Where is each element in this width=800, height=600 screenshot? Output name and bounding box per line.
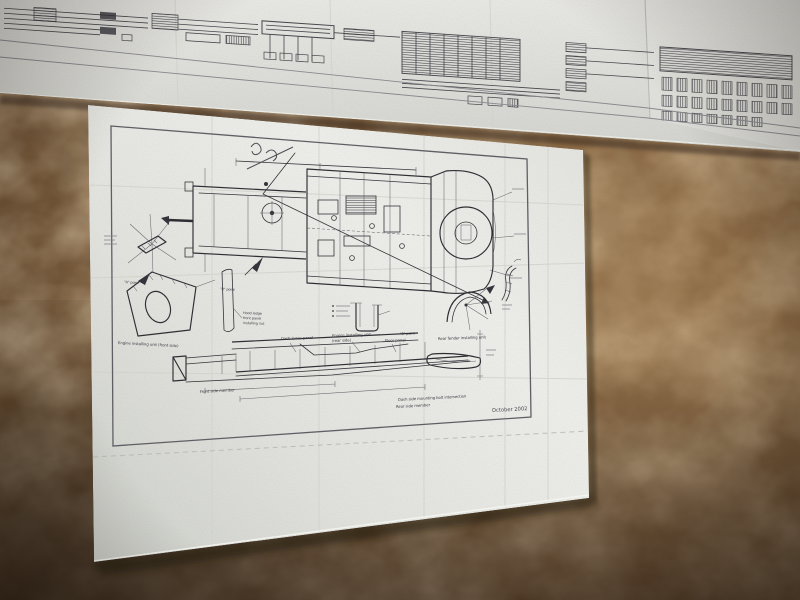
photo-scene: Engine installing unit (front side) Hood… [0,0,800,600]
photo-of-blueprints-on-wall: Engine installing unit (front side) Hood… [0,0,800,600]
photo-vignette [0,0,800,600]
